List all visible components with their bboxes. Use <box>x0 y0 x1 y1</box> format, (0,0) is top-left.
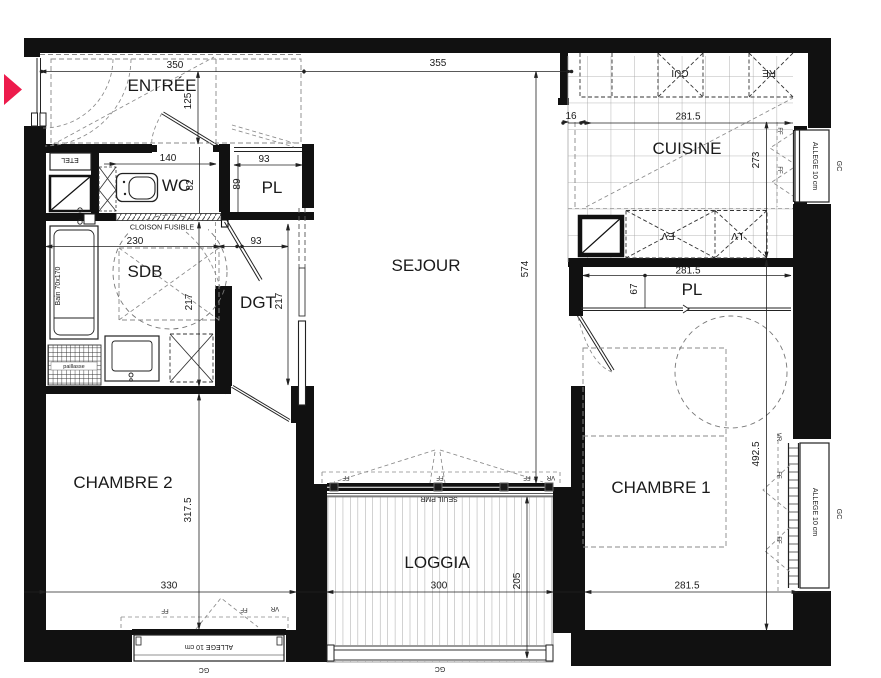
svg-text:FF: FF <box>776 127 782 135</box>
svg-text:230: 230 <box>127 236 144 247</box>
svg-text:67: 67 <box>629 283 640 295</box>
svg-text:FF: FF <box>523 474 531 480</box>
svg-text:ALLEGE 10 cm: ALLEGE 10 cm <box>811 488 818 536</box>
svg-text:DGT: DGT <box>240 293 276 312</box>
svg-text:GC: GC <box>835 161 842 172</box>
svg-text:SEJOUR: SEJOUR <box>392 256 461 275</box>
svg-text:FF: FF <box>161 607 169 613</box>
svg-text:273: 273 <box>751 151 762 168</box>
svg-text:FF: FF <box>436 474 444 480</box>
svg-text:FF: FF <box>240 606 248 612</box>
svg-text:355: 355 <box>430 58 447 69</box>
svg-text:ETEL: ETEL <box>61 156 79 163</box>
svg-text:317.5: 317.5 <box>183 497 194 522</box>
svg-text:CLOISON FUSIBLE: CLOISON FUSIBLE <box>130 223 195 232</box>
svg-text:300: 300 <box>431 581 448 592</box>
svg-text:140: 140 <box>160 153 177 164</box>
svg-text:93: 93 <box>250 236 262 247</box>
svg-text:LV: LV <box>731 230 743 241</box>
svg-text:217: 217 <box>184 293 195 310</box>
svg-text:89: 89 <box>232 178 243 190</box>
svg-text:CUI: CUI <box>671 67 688 78</box>
svg-text:ALLEGE 10 cm: ALLEGE 10 cm <box>811 142 818 190</box>
svg-text:93: 93 <box>258 154 270 165</box>
svg-text:281.5: 281.5 <box>675 112 700 123</box>
svg-text:FF: FF <box>775 536 781 544</box>
svg-text:281.5: 281.5 <box>675 266 700 277</box>
svg-text:205: 205 <box>512 572 523 589</box>
svg-text:GC: GC <box>199 666 210 673</box>
svg-text:GC: GC <box>435 665 446 672</box>
svg-text:RE: RE <box>762 67 776 78</box>
svg-text:ENTRÉE: ENTRÉE <box>128 76 197 95</box>
svg-text:492.5: 492.5 <box>751 441 762 466</box>
svg-text:FF: FF <box>342 474 350 480</box>
svg-text:PL: PL <box>682 280 703 299</box>
svg-text:574: 574 <box>520 260 531 277</box>
svg-text:ALLEGE 10 cm: ALLEGE 10 cm <box>185 643 233 650</box>
svg-text:16: 16 <box>565 111 577 122</box>
svg-text:EV: EV <box>661 230 675 241</box>
svg-text:CUISINE: CUISINE <box>653 139 722 158</box>
svg-text:PL: PL <box>262 178 283 197</box>
svg-text:CHAMBRE 1: CHAMBRE 1 <box>611 478 710 497</box>
svg-text:FF: FF <box>775 471 781 479</box>
svg-text:WC: WC <box>162 176 190 195</box>
svg-text:350: 350 <box>167 60 184 71</box>
svg-text:LOGGIA: LOGGIA <box>404 553 470 572</box>
svg-text:VR: VR <box>270 605 279 611</box>
svg-text:Bain 70x170: Bain 70x170 <box>55 266 62 305</box>
svg-text:SEUIL PMR: SEUIL PMR <box>420 495 457 502</box>
svg-text:VR: VR <box>546 474 555 480</box>
svg-text:330: 330 <box>161 581 178 592</box>
svg-text:281.5: 281.5 <box>674 581 699 592</box>
svg-text:SDB: SDB <box>128 262 163 281</box>
svg-text:GC: GC <box>835 509 842 520</box>
svg-text:paillasse: paillasse <box>63 364 84 370</box>
svg-text:VR: VR <box>775 433 781 442</box>
svg-text:FF: FF <box>776 166 782 174</box>
svg-text:CHAMBRE 2: CHAMBRE 2 <box>73 473 172 492</box>
